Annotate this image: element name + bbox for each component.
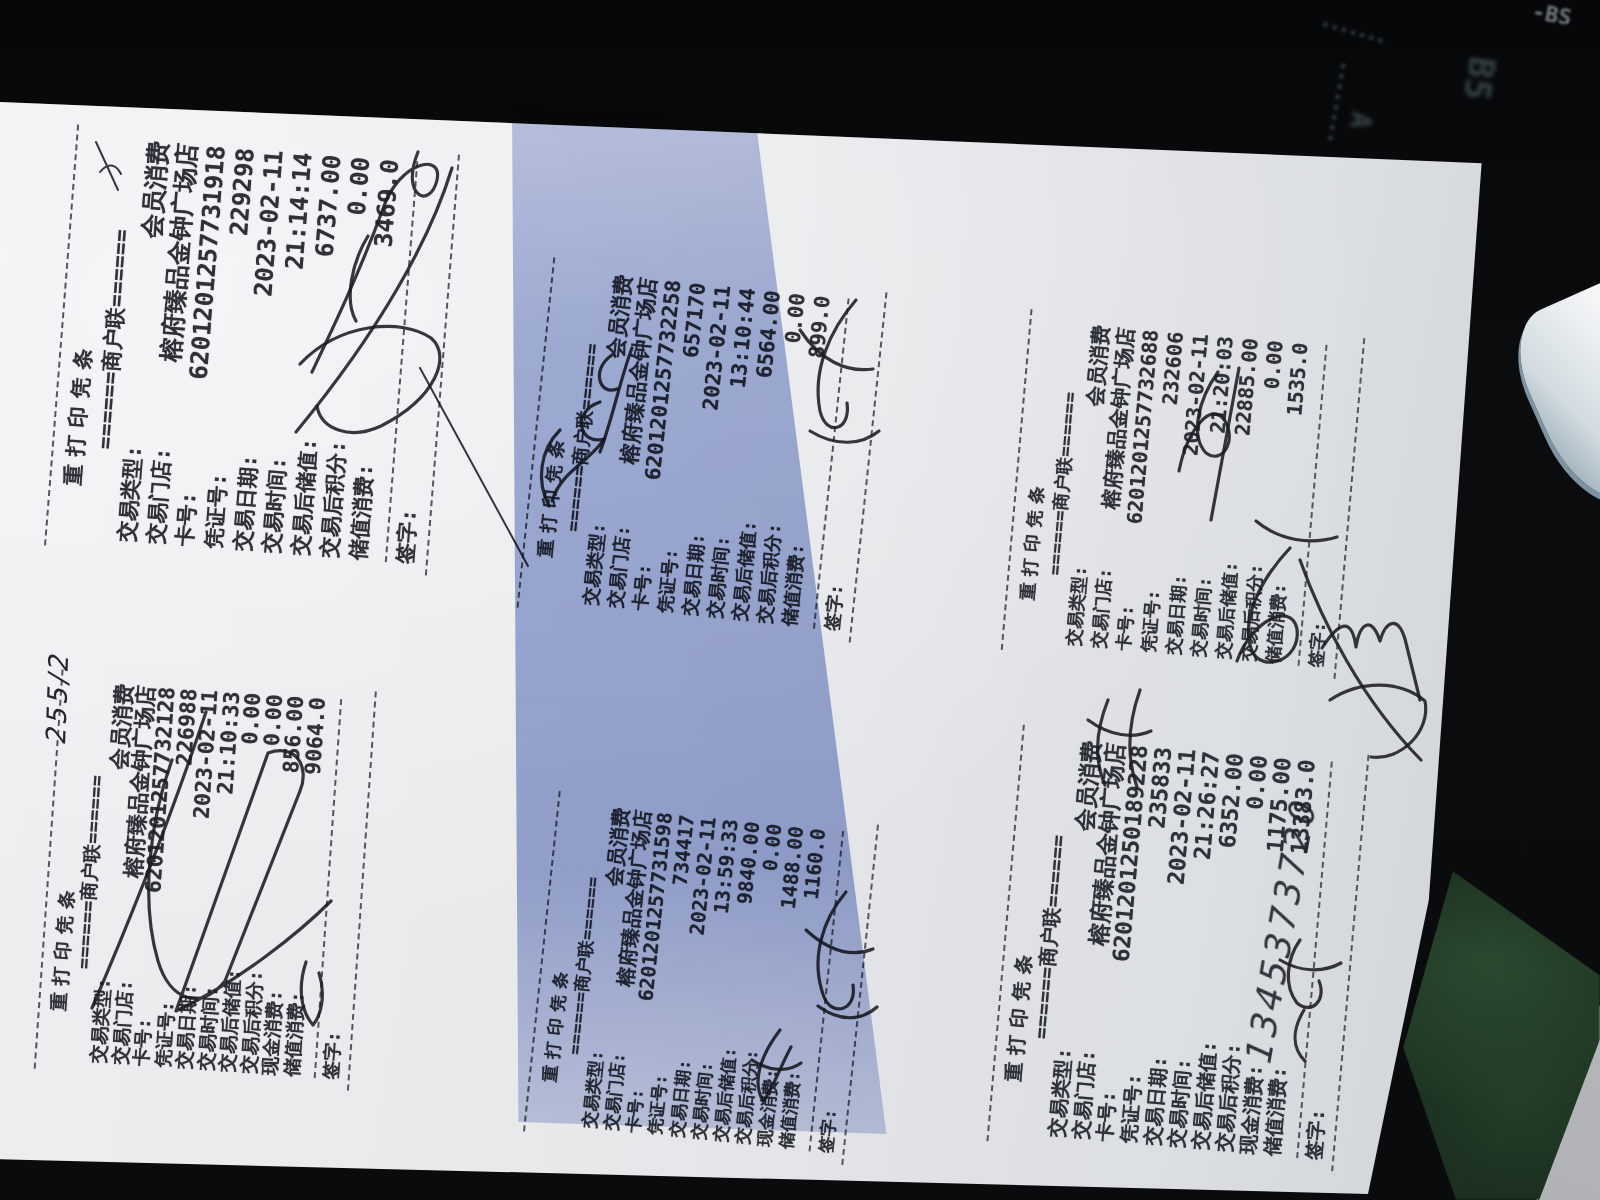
handwritten-corner-note: 255/2 [40,652,74,746]
line-value: 1535.0 [1282,342,1313,417]
sign-label: 签字: [391,508,424,565]
sign-label: 签字: [814,1108,841,1154]
receipt-slip-bottom-middle: 重打印凭条 ======商户联====== 交易类型:会员消费交易门店:榕府臻品… [523,791,879,1165]
mat-corner-label-bs: -BS [1530,0,1573,30]
line-label: 储值消费: [344,462,380,561]
receipt-lines: 交易类型:会员消费交易门店:榕府臻品金钟广场店卡号:62012012577321… [87,683,328,1077]
mat-size-label-a: A [1343,109,1378,131]
receipt-lines: 交易类型:会员消费交易门店:榕府臻品金钟广场店卡号:62012012577319… [113,140,405,561]
receipt-slip-top-middle: 重打印凭条 ======商户联====== 交易类型:会员消费交易门店:榕府臻品… [517,257,888,642]
sign-label: 签字: [1303,621,1332,669]
sign-label: 签字: [1302,1108,1330,1161]
line-label: 储值消费: [280,991,307,1077]
line-value: 0.00 [342,156,376,217]
sign-label: 签字: [320,1030,345,1080]
mat-dotted-line [1323,22,1384,44]
receipt-slip-bottom-right: 重打印凭条 ======商户联====== 交易类型:会员消费交易门店:榕府臻品… [986,725,1369,1172]
sign-label: 签字: [819,583,849,632]
receipt-lines: 交易类型:会员消费交易门店:榕府臻品金钟广场店卡号:62012012577326… [1061,324,1313,664]
receipt-lines: 交易类型:会员消费交易门店:榕府臻品金钟广场店卡号:62012012577315… [578,807,830,1150]
receipt-lines: 交易类型:会员消费交易门店:榕府臻品金钟广场店卡号:62012012577322… [577,274,835,628]
receipt-slip-bottom-left: 重打印凭条 ======商户联====== 交易类型:会员消费交易门店:榕府臻品… [34,669,377,1090]
mat-size-label-b5: B5 [1456,54,1503,103]
line-value: 3469.0 [369,158,405,248]
mat-dotted-line [1328,63,1346,141]
line-value: 1160.0 [801,827,830,900]
receipt-slip-top-right: 重打印凭条 ======商户联====== 交易类型:会员消费交易门店:榕府臻品… [1001,309,1366,679]
line-label: 卡号: [170,491,203,548]
line-value: 9064.0 [301,697,328,776]
line-value: 899.0 [804,295,835,360]
receipt-slip-top-left: 重打印凭条 ======商户联====== 交易类型:会员消费交易门店:榕府臻品… [44,125,460,576]
